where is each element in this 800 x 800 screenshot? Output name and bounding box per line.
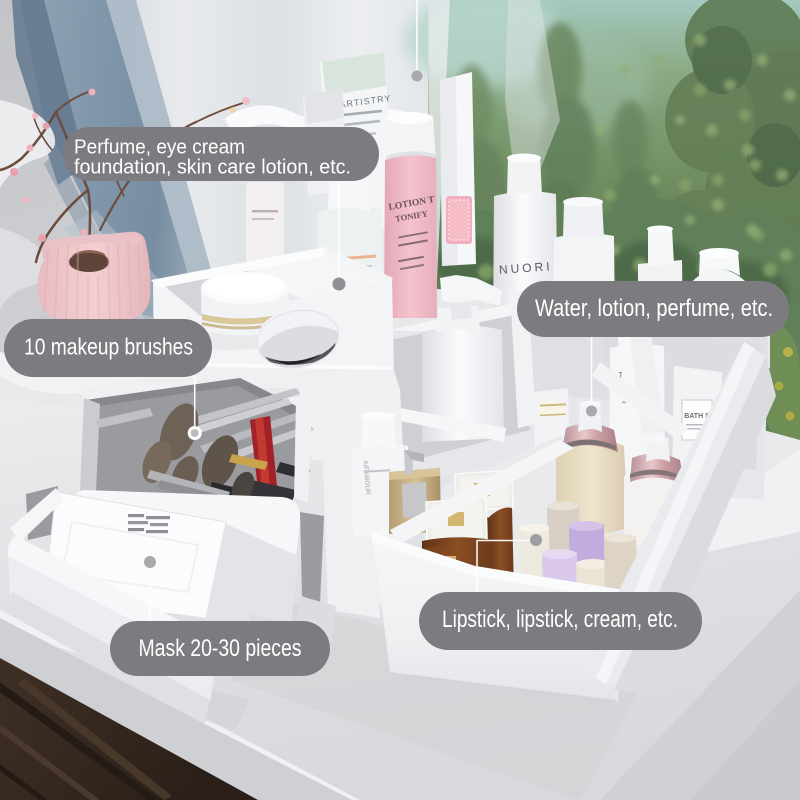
svg-text:Mask 20-30 pieces: Mask 20-30 pieces [139,635,302,662]
svg-text:Water, lotion, perfume, etc.: Water, lotion, perfume, etc. [535,295,773,322]
svg-text:foundation, skin care lotion,: foundation, skin care lotion, etc. [74,156,351,179]
svg-text:10 makeup brushes: 10 makeup brushes [24,334,193,360]
svg-text:Lipstick, lipstick, cream, etc: Lipstick, lipstick, cream, etc. [442,606,678,633]
